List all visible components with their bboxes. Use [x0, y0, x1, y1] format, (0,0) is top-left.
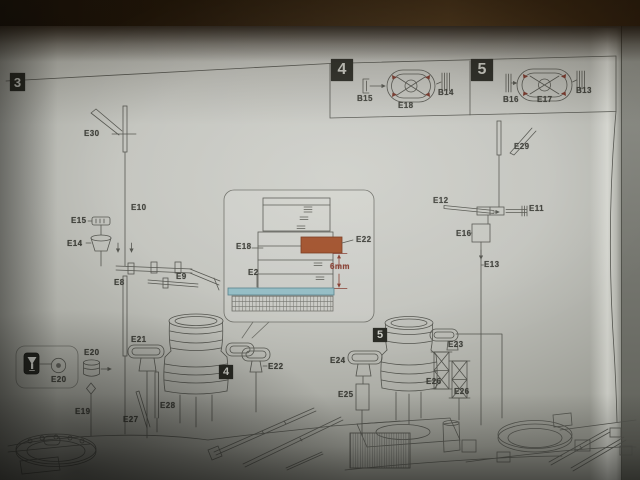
- inset-4-drawing: [363, 70, 450, 102]
- part-label-E2: E2: [248, 269, 259, 277]
- part-label-E9: E9: [176, 273, 187, 281]
- part-label-B14: B14: [438, 89, 454, 97]
- part-label-E29: E29: [514, 143, 529, 151]
- part-label-E16: E16: [456, 230, 471, 238]
- ship-deck-drawing: [8, 408, 636, 474]
- part-label-6mm: 6mm: [330, 263, 350, 271]
- part-label-E20-top: E20: [51, 376, 66, 384]
- part-label-E15: E15: [71, 217, 86, 225]
- part-label-B13: B13: [576, 87, 592, 95]
- part-label-E18-inset: E18: [398, 102, 413, 110]
- part-label-E26-right: E26: [454, 388, 469, 396]
- detail-callout-drawing: [224, 190, 374, 338]
- part-label-E10: E10: [131, 204, 146, 212]
- part-label-E20-part: E20: [84, 349, 99, 357]
- funnel-2-drawing: [348, 317, 502, 437]
- part-label-E11: E11: [529, 205, 544, 213]
- part-label-E19: E19: [75, 408, 90, 416]
- step-number-4: 4: [331, 59, 353, 81]
- part-label-E26-left: E26: [426, 378, 441, 386]
- diagram-layer: E30E10E15E14E8E9B15E18B14B16E17B13E29E12…: [0, 0, 640, 480]
- part-label-E14: E14: [67, 240, 82, 248]
- left-mast-drawing: [86, 106, 220, 434]
- part-label-E27: E27: [123, 416, 138, 424]
- assembly-diagram-linework: [0, 0, 640, 480]
- step-number-5: 5: [471, 59, 493, 81]
- part-label-E24: E24: [330, 357, 345, 365]
- part-label-B15: B15: [357, 95, 373, 103]
- step-number-3: 3: [10, 73, 25, 91]
- part-label-E25: E25: [338, 391, 353, 399]
- part-label-E13: E13: [484, 261, 499, 269]
- part-label-E17: E17: [537, 96, 552, 104]
- part-label-E8: E8: [114, 279, 125, 287]
- part-label-E22-tub: E22: [268, 363, 283, 371]
- photographed-instruction-page: E30E10E15E14E8E9B15E18B14B16E17B13E29E12…: [0, 0, 640, 480]
- part-label-E28: E28: [160, 402, 175, 410]
- e20-callout-drawing: [16, 346, 111, 436]
- part-label-E21: E21: [131, 336, 146, 344]
- part-label-E12: E12: [433, 197, 448, 205]
- step-number-4: 4: [219, 365, 233, 379]
- part-label-E23: E23: [448, 341, 463, 349]
- part-label-E22-detail: E22: [356, 236, 371, 244]
- part-label-B16: B16: [503, 96, 519, 104]
- funnel-1-drawing: [128, 314, 270, 438]
- part-label-E30: E30: [84, 130, 99, 138]
- step-number-5: 5: [373, 328, 387, 342]
- part-label-E18-detail: E18: [236, 243, 251, 251]
